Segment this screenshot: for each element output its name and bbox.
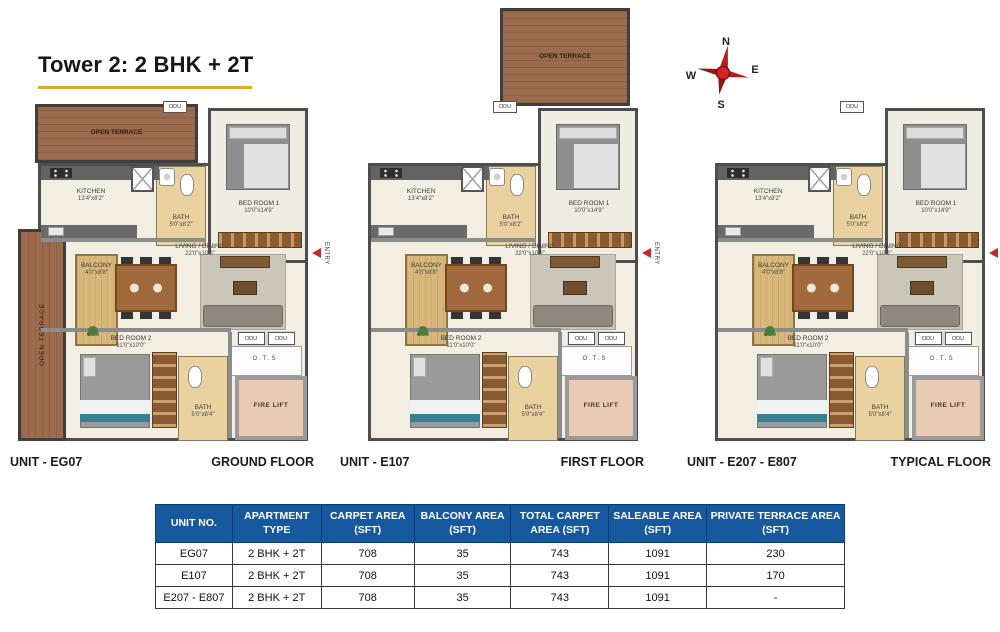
fire-lift-label: FIRE LIFT: [912, 402, 984, 410]
room-dim: 22'0"x10'0": [468, 251, 592, 259]
compass-n-label: N: [722, 36, 730, 48]
table-cell: 743: [511, 543, 609, 565]
table-cell: E107: [156, 565, 233, 587]
table-cell: 2 BHK + 2T: [232, 543, 321, 565]
room-dim: 5'0"x8'2": [486, 222, 536, 230]
room-dim: 10'0"x14'9": [893, 208, 979, 216]
entry-marker: ENTRY: [989, 242, 1000, 265]
sink-icon: [725, 227, 741, 236]
bedroom2-label: BED ROOM 2 11'0"x10'0": [415, 335, 507, 351]
odu-unit: ODU: [598, 332, 625, 345]
area-table: UNIT NO.APARTMENT TYPECARPET AREA (SFT)B…: [155, 504, 845, 609]
duct-shaft: [808, 166, 831, 192]
room-name: BED ROOM 2: [788, 335, 829, 342]
bath1-label: BATH 5'0"x8'2": [156, 214, 206, 230]
floor-plan: OPEN TERRACE OPEN TERRACE ODU KITCHEN 13…: [30, 104, 312, 441]
coffee-table-icon: [910, 281, 934, 295]
table-header-cell: CARPET AREA (SFT): [321, 505, 414, 543]
dining-table-icon: [792, 264, 854, 312]
bedroom2-label: BED ROOM 2 11'0"x10'0": [85, 335, 177, 351]
floor-label: TYPICAL FLOOR: [891, 455, 991, 469]
bed-sheet: [921, 144, 965, 188]
kitchen-label: KITCHEN 13'4"x8'2": [378, 188, 464, 204]
room-name: BED ROOM 1: [916, 200, 957, 207]
kitchen-label: KITCHEN 13'4"x8'2": [48, 188, 134, 204]
table-cell: 35: [414, 587, 511, 609]
dining-table-icon: [115, 264, 177, 312]
bedroom2-label: BED ROOM 2 11'0"x10'0": [762, 335, 854, 351]
room-name: KITCHEN: [754, 188, 783, 195]
bedroom1-label: BED ROOM 1 10'0"x14'9": [216, 200, 302, 216]
wardrobe-icon: [829, 352, 854, 428]
table-cell: 35: [414, 565, 511, 587]
bed-runner: [757, 414, 827, 422]
wardrobe-icon: [152, 352, 177, 428]
table-header-cell: APARTMENT TYPE: [232, 505, 321, 543]
table-cell: 35: [414, 543, 511, 565]
washbasin-icon: [489, 168, 505, 186]
table-cell: 1091: [609, 587, 707, 609]
open-terrace-label: OPEN TERRACE: [39, 303, 46, 366]
unit-label: UNIT - E207 - E807: [687, 455, 797, 469]
ots-label: O.T.S: [558, 356, 632, 364]
kitchen-label: KITCHEN 13'4"x8'2": [725, 188, 811, 204]
bath2-room: [508, 356, 558, 441]
room-dim: 4'0"x8'8": [405, 270, 448, 278]
wall: [905, 332, 909, 438]
sink-icon: [378, 227, 394, 236]
entry-marker: ENTRY: [642, 242, 659, 265]
stove-icon: [50, 168, 72, 178]
entry-label: ENTRY: [653, 242, 659, 265]
bath2-label: BATH 5'0"x8'4": [178, 404, 228, 420]
fire-lift-label: FIRE LIFT: [565, 402, 637, 410]
floor-plan: ODU KITCHEN 13'4"x8'2" BATH 5'0"x8'2" BE…: [707, 104, 989, 441]
odu-units: ODU ODU: [914, 331, 972, 346]
stove-icon: [380, 168, 402, 178]
plan-caption: UNIT - EG07 GROUND FLOOR: [10, 455, 314, 469]
toilet-icon: [180, 174, 194, 196]
room-name: BED ROOM 2: [441, 335, 482, 342]
floor-plan: OPEN TERRACE ODU KITCHEN 13'4"x8'2" BATH…: [360, 104, 642, 441]
odu-units: ODU ODU: [237, 331, 295, 346]
odu-unit: ODU: [238, 332, 265, 345]
bath1-label: BATH 5'0"x8'2": [833, 214, 883, 230]
wall: [41, 238, 206, 242]
room-name: LIVING / DINING: [175, 243, 224, 250]
wall: [718, 238, 883, 242]
room-name: KITCHEN: [77, 188, 106, 195]
room-dim: 10'0"x14'9": [546, 208, 632, 216]
coffee-table-icon: [563, 281, 587, 295]
ots-label: O.T.S: [228, 356, 302, 364]
open-terrace-label: OPEN TERRACE: [539, 53, 591, 61]
table-row: E207 - E8072 BHK + 2T708357431091-: [156, 587, 845, 609]
page-title: Tower 2: 2 BHK + 2T: [38, 52, 254, 78]
bed-runner: [80, 414, 150, 422]
room-name: BATH: [850, 214, 867, 221]
room-dim: 22'0"x10'0": [138, 251, 262, 259]
table-row: EG072 BHK + 2T708357431091230: [156, 543, 845, 565]
room-name: BATH: [872, 404, 889, 411]
entry-arrow-icon: [312, 248, 321, 258]
bed-runner: [410, 414, 480, 422]
table-cell: 743: [511, 587, 609, 609]
compass-e-label: E: [751, 64, 758, 76]
pillow-icon: [559, 127, 617, 139]
floor-label: GROUND FLOOR: [211, 455, 314, 469]
living-dining-label: LIVING / DINING 22'0"x10'0": [138, 243, 262, 259]
room-dim: 5'0"x8'4": [508, 412, 558, 420]
entry-arrow-icon: [989, 248, 998, 258]
pillow-icon: [229, 127, 287, 139]
sink-icon: [48, 227, 64, 236]
table-header-cell: TOTAL CARPET AREA (SFT): [511, 505, 609, 543]
room-name: BALCONY: [411, 262, 442, 269]
room-dim: 5'0"x8'2": [156, 222, 206, 230]
bath2-label: BATH 5'0"x8'4": [508, 404, 558, 420]
odu-unit: ODU: [268, 332, 295, 345]
washbasin-icon: [159, 168, 175, 186]
entry-label: ENTRY: [323, 242, 329, 265]
washbasin-icon: [836, 168, 852, 186]
room-name: KITCHEN: [407, 188, 436, 195]
pillow-icon: [413, 357, 426, 377]
table-cell: E207 - E807: [156, 587, 233, 609]
stove-icon: [727, 168, 749, 178]
unit-label: UNIT - EG07: [10, 455, 82, 469]
odu-label: ODU: [575, 336, 587, 342]
living-dining-label: LIVING / DINING 22'0"x10'0": [815, 243, 939, 259]
odu-unit: ODU: [840, 101, 864, 113]
table-header-row: UNIT NO.APARTMENT TYPECARPET AREA (SFT)B…: [156, 505, 845, 543]
odu-label: ODU: [846, 104, 858, 110]
table-cell: 170: [707, 565, 845, 587]
coffee-table-icon: [233, 281, 257, 295]
room-dim: 11'0"x10'0": [415, 343, 507, 351]
floor-plan-sheet: Tower 2: 2 BHK + 2T N E S W OPEN TERRACE…: [0, 0, 1000, 632]
ots-label: O.T.S: [905, 356, 979, 364]
bath1-label: BATH 5'0"x8'2": [486, 214, 536, 230]
table-cell: -: [707, 587, 845, 609]
entry-marker: ENTRY: [312, 242, 329, 265]
bed-sheet: [574, 144, 618, 188]
room-dim: 11'0"x10'0": [762, 343, 854, 351]
wall: [41, 328, 231, 332]
odu-unit: ODU: [493, 101, 517, 113]
bedroom1-label: BED ROOM 1 10'0"x14'9": [893, 200, 979, 216]
bedroom1-label: BED ROOM 1 10'0"x14'9": [546, 200, 632, 216]
room-name: LIVING / DINING: [852, 243, 901, 250]
room-name: LIVING / DINING: [505, 243, 554, 250]
odu-unit: ODU: [163, 101, 187, 113]
table-cell: 708: [321, 543, 414, 565]
table-cell: 1091: [609, 543, 707, 565]
room-name: BATH: [525, 404, 542, 411]
sofa-icon: [203, 305, 283, 327]
room-dim: 5'0"x8'4": [855, 412, 905, 420]
table-header-cell: SALEABLE AREA (SFT): [609, 505, 707, 543]
table-cell: 230: [707, 543, 845, 565]
toilet-icon: [510, 174, 524, 196]
room-name: BATH: [503, 214, 520, 221]
room-dim: 4'0"x8'8": [75, 270, 118, 278]
fire-lift-label: FIRE LIFT: [235, 402, 307, 410]
room-dim: 5'0"x8'4": [178, 412, 228, 420]
unit-label: UNIT - E107: [340, 455, 409, 469]
room-name: BATH: [173, 214, 190, 221]
room-dim: 11'0"x10'0": [85, 343, 177, 351]
odu-label: ODU: [605, 336, 617, 342]
toilet-icon: [857, 174, 871, 196]
room-name: BED ROOM 1: [239, 200, 280, 207]
table-cell: 708: [321, 587, 414, 609]
room-name: BALCONY: [81, 262, 112, 269]
area-table-wrap: UNIT NO.APARTMENT TYPECARPET AREA (SFT)B…: [155, 504, 845, 609]
wall: [718, 328, 908, 332]
odu-label: ODU: [169, 104, 181, 110]
duct-shaft: [461, 166, 484, 192]
open-terrace-above: OPEN TERRACE: [500, 8, 630, 106]
bath2-label: BATH 5'0"x8'4": [855, 404, 905, 420]
bath2-room: [855, 356, 905, 441]
wardrobe-icon: [482, 352, 507, 428]
open-terrace-label: OPEN TERRACE: [91, 129, 143, 137]
room-dim: 5'0"x8'2": [833, 222, 883, 230]
table-header-cell: PRIVATE TERRACE AREA (SFT): [707, 505, 845, 543]
balcony-label: BALCONY 4'0"x8'8": [75, 262, 118, 278]
compass-w-label: W: [686, 70, 697, 82]
wall: [558, 332, 562, 438]
toilet-icon: [518, 366, 532, 388]
room-name: BED ROOM 2: [111, 335, 152, 342]
dining-table-icon: [445, 264, 507, 312]
room-dim: 10'0"x14'9": [216, 208, 302, 216]
table-cell: 1091: [609, 565, 707, 587]
odu-label: ODU: [275, 336, 287, 342]
odu-unit: ODU: [945, 332, 972, 345]
odu-label: ODU: [499, 104, 511, 110]
title-underline: [38, 86, 252, 89]
odu-label: ODU: [922, 336, 934, 342]
table-cell: 743: [511, 565, 609, 587]
table-header-cell: BALCONY AREA (SFT): [414, 505, 511, 543]
room-name: BATH: [195, 404, 212, 411]
table-cell: 2 BHK + 2T: [232, 587, 321, 609]
wall: [228, 332, 232, 438]
room-dim: 13'4"x8'2": [378, 196, 464, 204]
bed-sheet: [244, 144, 288, 188]
toilet-icon: [188, 366, 202, 388]
room-name: BALCONY: [758, 262, 789, 269]
balcony-label: BALCONY 4'0"x8'8": [752, 262, 795, 278]
table-header-cell: UNIT NO.: [156, 505, 233, 543]
sofa-icon: [533, 305, 613, 327]
pillow-icon: [906, 127, 964, 139]
pillow-icon: [83, 357, 96, 377]
entry-arrow-icon: [642, 248, 651, 258]
odu-label: ODU: [952, 336, 964, 342]
room-name: BED ROOM 1: [569, 200, 610, 207]
toilet-icon: [865, 366, 879, 388]
room-dim: 22'0"x10'0": [815, 251, 939, 259]
compass-icon: N E S W: [683, 33, 767, 111]
table-row: E1072 BHK + 2T708357431091170: [156, 565, 845, 587]
odu-label: ODU: [245, 336, 257, 342]
plan-caption: UNIT - E207 - E807 TYPICAL FLOOR: [687, 455, 991, 469]
odu-unit: ODU: [568, 332, 595, 345]
room-dim: 13'4"x8'2": [48, 196, 134, 204]
odu-unit: ODU: [915, 332, 942, 345]
table-cell: EG07: [156, 543, 233, 565]
open-terrace-left: OPEN TERRACE: [18, 229, 66, 441]
table-cell: 2 BHK + 2T: [232, 565, 321, 587]
odu-units: ODU ODU: [567, 331, 625, 346]
wall: [371, 238, 536, 242]
floor-label: FIRST FLOOR: [561, 455, 644, 469]
living-dining-label: LIVING / DINING 22'0"x10'0": [468, 243, 592, 259]
duct-shaft: [131, 166, 154, 192]
balcony-label: BALCONY 4'0"x8'8": [405, 262, 448, 278]
plan-caption: UNIT - E107 FIRST FLOOR: [340, 455, 644, 469]
table-cell: 708: [321, 565, 414, 587]
sofa-icon: [880, 305, 960, 327]
wall: [371, 328, 561, 332]
pillow-icon: [760, 357, 773, 377]
bath2-room: [178, 356, 228, 441]
room-dim: 4'0"x8'8": [752, 270, 795, 278]
room-dim: 13'4"x8'2": [725, 196, 811, 204]
